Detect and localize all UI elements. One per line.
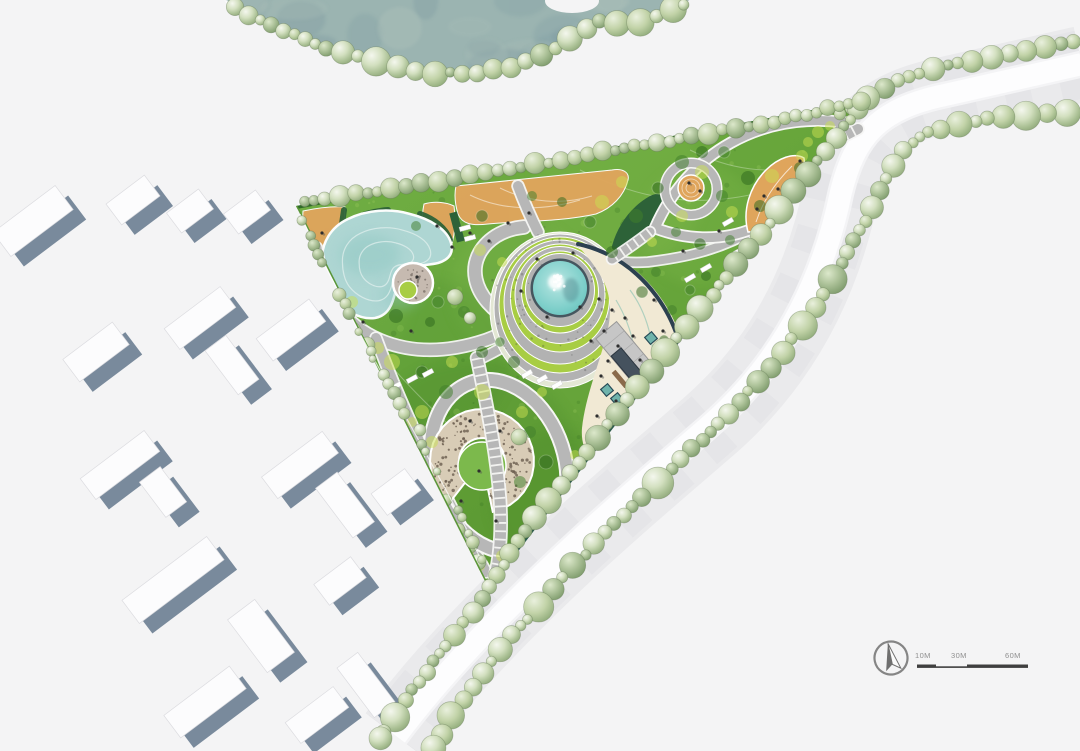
person-dot bbox=[545, 315, 548, 318]
person-dot bbox=[599, 374, 602, 377]
person-dot bbox=[459, 499, 462, 502]
person-dot bbox=[435, 224, 438, 227]
person-dot bbox=[487, 239, 490, 242]
person-dot bbox=[755, 207, 758, 210]
scale-label-30m: 30M bbox=[951, 651, 967, 660]
person-dot bbox=[616, 344, 619, 347]
person-dot bbox=[506, 221, 509, 224]
person-dot bbox=[571, 251, 574, 254]
person-dot bbox=[450, 245, 453, 248]
person-dot bbox=[606, 359, 609, 362]
scale-segment-1 bbox=[917, 665, 936, 668]
person-dot bbox=[415, 275, 418, 278]
person-dot bbox=[494, 519, 497, 522]
person-dot bbox=[638, 358, 641, 361]
person-dot bbox=[698, 189, 701, 192]
site-plan-drawing: 10M 30M 60M bbox=[0, 0, 1080, 751]
person-dot bbox=[361, 320, 364, 323]
person-dot bbox=[519, 289, 522, 292]
landscape-plan-canvas: 10M 30M 60M bbox=[0, 0, 1080, 751]
person-dot bbox=[798, 159, 801, 162]
person-dot bbox=[477, 469, 480, 472]
person-dot bbox=[687, 181, 690, 184]
person-dot bbox=[320, 231, 323, 234]
person-dot bbox=[610, 308, 613, 311]
person-dot bbox=[681, 249, 684, 252]
person-dot bbox=[652, 298, 655, 301]
person-dot bbox=[498, 429, 501, 432]
person-dot bbox=[661, 329, 664, 332]
person-dot bbox=[602, 329, 605, 332]
person-dot bbox=[589, 339, 592, 342]
person-dot bbox=[776, 187, 779, 190]
person-dot bbox=[762, 194, 765, 197]
person-dot bbox=[631, 334, 634, 337]
person-dot bbox=[527, 211, 530, 214]
scale-segment-3 bbox=[967, 665, 1028, 668]
person-dot bbox=[578, 305, 581, 308]
scale-label-10m: 10M bbox=[915, 651, 931, 660]
person-dot bbox=[595, 414, 598, 417]
scale-segment-2 bbox=[936, 666, 967, 668]
person-dot bbox=[468, 419, 471, 422]
person-dot bbox=[535, 257, 538, 260]
person-dot bbox=[623, 316, 626, 319]
person-dot bbox=[409, 329, 412, 332]
person-dot bbox=[717, 229, 720, 232]
person-dot bbox=[597, 297, 600, 300]
scale-label-60m: 60M bbox=[1005, 651, 1021, 660]
person-dot bbox=[468, 231, 471, 234]
